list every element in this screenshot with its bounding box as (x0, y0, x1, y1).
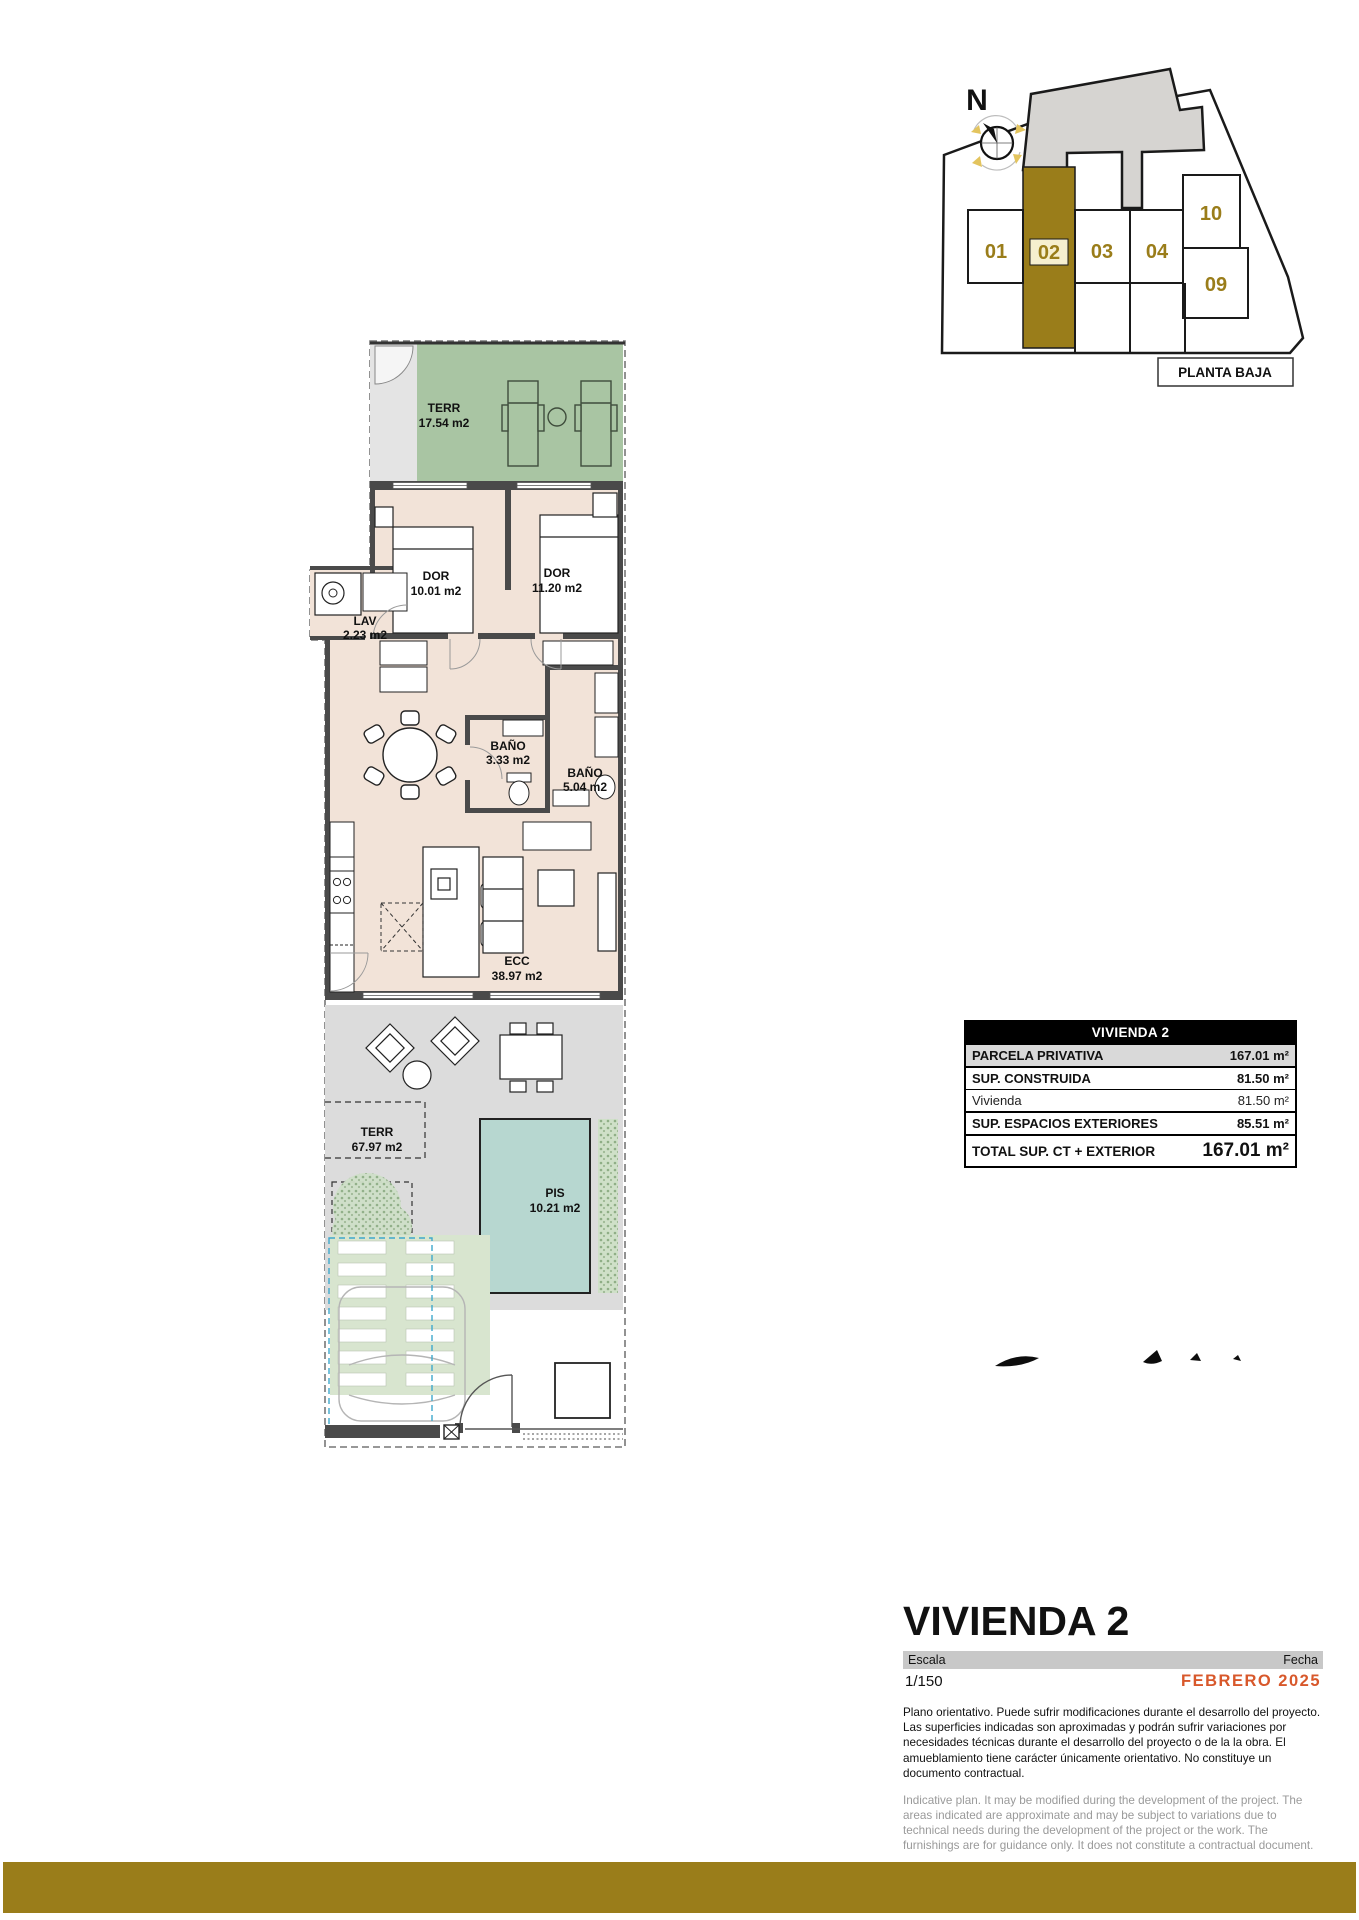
date-value: FEBRERO 2025 (1181, 1672, 1321, 1691)
kitchen-island (423, 847, 479, 977)
row-value: 81.50 m² (1237, 1071, 1289, 1086)
unit-03-label: 03 (1091, 241, 1113, 263)
hedge (598, 1119, 618, 1293)
sofa (483, 857, 523, 953)
svg-text:10.01 m2: 10.01 m2 (411, 584, 462, 598)
row-label: PARCELA PRIVATIVA (972, 1048, 1103, 1063)
svg-text:BAÑO: BAÑO (490, 738, 525, 753)
storage-box (555, 1363, 610, 1418)
unit-01-label: 01 (985, 241, 1007, 263)
planta-baja-label: PLANTA BAJA (1178, 365, 1272, 380)
coffee-table (538, 870, 574, 906)
porch-side-table (403, 1061, 431, 1089)
tv-bench (598, 873, 616, 951)
table-row: PARCELA PRIVATIVA 167.01 m² (966, 1043, 1295, 1066)
sink (503, 720, 543, 736)
row-label: Vivienda (972, 1093, 1022, 1108)
svg-text:BAÑO: BAÑO (567, 765, 602, 780)
row-label: SUP. CONSTRUIDA (972, 1071, 1091, 1086)
svg-text:2.23 m2: 2.23 m2 (343, 628, 387, 642)
svg-text:67.97 m2: 67.97 m2 (352, 1140, 403, 1154)
floorplan-sheet: { "site_map": { "north_label": "N", "flo… (0, 0, 1359, 1920)
summary-table: VIVIENDA 2 PARCELA PRIVATIVA 167.01 m² S… (964, 1020, 1297, 1168)
unit-02-label: 02 (1038, 242, 1060, 264)
svg-text:11.20 m2: 11.20 m2 (532, 581, 582, 595)
table-row: SUP. CONSTRUIDA 81.50 m² (966, 1066, 1295, 1089)
scale-date-values: 1/150 FEBRERO 2025 (903, 1672, 1323, 1691)
svg-text:TERR: TERR (428, 401, 461, 415)
disclaimer-english: Indicative plan. It may be modified duri… (903, 1793, 1323, 1854)
row-value: 167.01 m² (1230, 1048, 1289, 1063)
unit-10-label: 10 (1200, 203, 1222, 225)
row-label: SUP. ESPACIOS EXTERIORES (972, 1116, 1158, 1131)
table-row-total: TOTAL SUP. CT + EXTERIOR 167.01 m² (966, 1134, 1295, 1166)
room-label-bano2: BAÑO 5.04 m2 (563, 765, 607, 794)
svg-text:DOR: DOR (423, 569, 450, 583)
scale-label: Escala (908, 1653, 946, 1667)
summary-table-header: VIVIENDA 2 (966, 1022, 1295, 1043)
hob-icon (330, 871, 354, 913)
date-label: Fecha (1283, 1653, 1318, 1667)
svg-text:5.04 m2: 5.04 m2 (563, 780, 607, 794)
svg-text:17.54 m2: 17.54 m2 (419, 416, 470, 430)
table-row: Vivienda 81.50 m² (966, 1089, 1295, 1111)
toilet (507, 773, 531, 805)
unit-09-label: 09 (1205, 274, 1227, 296)
sideboard (523, 822, 591, 850)
room-label-bano1: BAÑO 3.33 m2 (486, 738, 530, 767)
title-block: VIVIENDA 2 Escala Fecha 1/150 FEBRERO 20… (903, 1601, 1323, 1865)
row-value: 167.01 m² (1202, 1140, 1289, 1162)
svg-text:10.21 m2: 10.21 m2 (530, 1201, 581, 1215)
svg-text:3.33 m2: 3.33 m2 (486, 753, 530, 767)
washing-machine (315, 573, 361, 615)
svg-text:LAV: LAV (353, 614, 376, 628)
unit-04-label: 04 (1146, 241, 1169, 263)
page-title: VIVIENDA 2 (903, 1601, 1323, 1642)
table-row: SUP. ESPACIOS EXTERIORES 85.51 m² (966, 1111, 1295, 1134)
svg-text:PIS: PIS (545, 1186, 564, 1200)
scale-date-bar: Escala Fecha (903, 1651, 1323, 1669)
sun-lounger (575, 381, 617, 466)
row-label: TOTAL SUP. CT + EXTERIOR (972, 1144, 1155, 1159)
scale-value: 1/150 (905, 1673, 943, 1690)
sun-lounger (502, 381, 544, 466)
partial-logo-watermark (985, 1340, 1265, 1380)
utility-box-icon (444, 1425, 459, 1439)
footer-accent-bar (3, 1862, 1356, 1913)
site-location-map: 01 02 03 04 10 09 N PLANTA BAJA (770, 50, 1359, 395)
svg-text:38.97 m2: 38.97 m2 (492, 969, 543, 983)
row-value: 81.50 m² (1238, 1093, 1289, 1108)
disclaimer-spanish: Plano orientativo. Puede sufrir modifica… (903, 1705, 1323, 1781)
north-label: N (966, 84, 988, 117)
svg-text:DOR: DOR (544, 566, 571, 580)
svg-text:ECC: ECC (504, 954, 530, 968)
floor-plan: TERR 17.54 m2 DOR 10.01 m2 DOR 11.20 m2 … (305, 335, 640, 1460)
row-value: 85.51 m² (1237, 1116, 1289, 1131)
svg-text:TERR: TERR (361, 1125, 394, 1139)
